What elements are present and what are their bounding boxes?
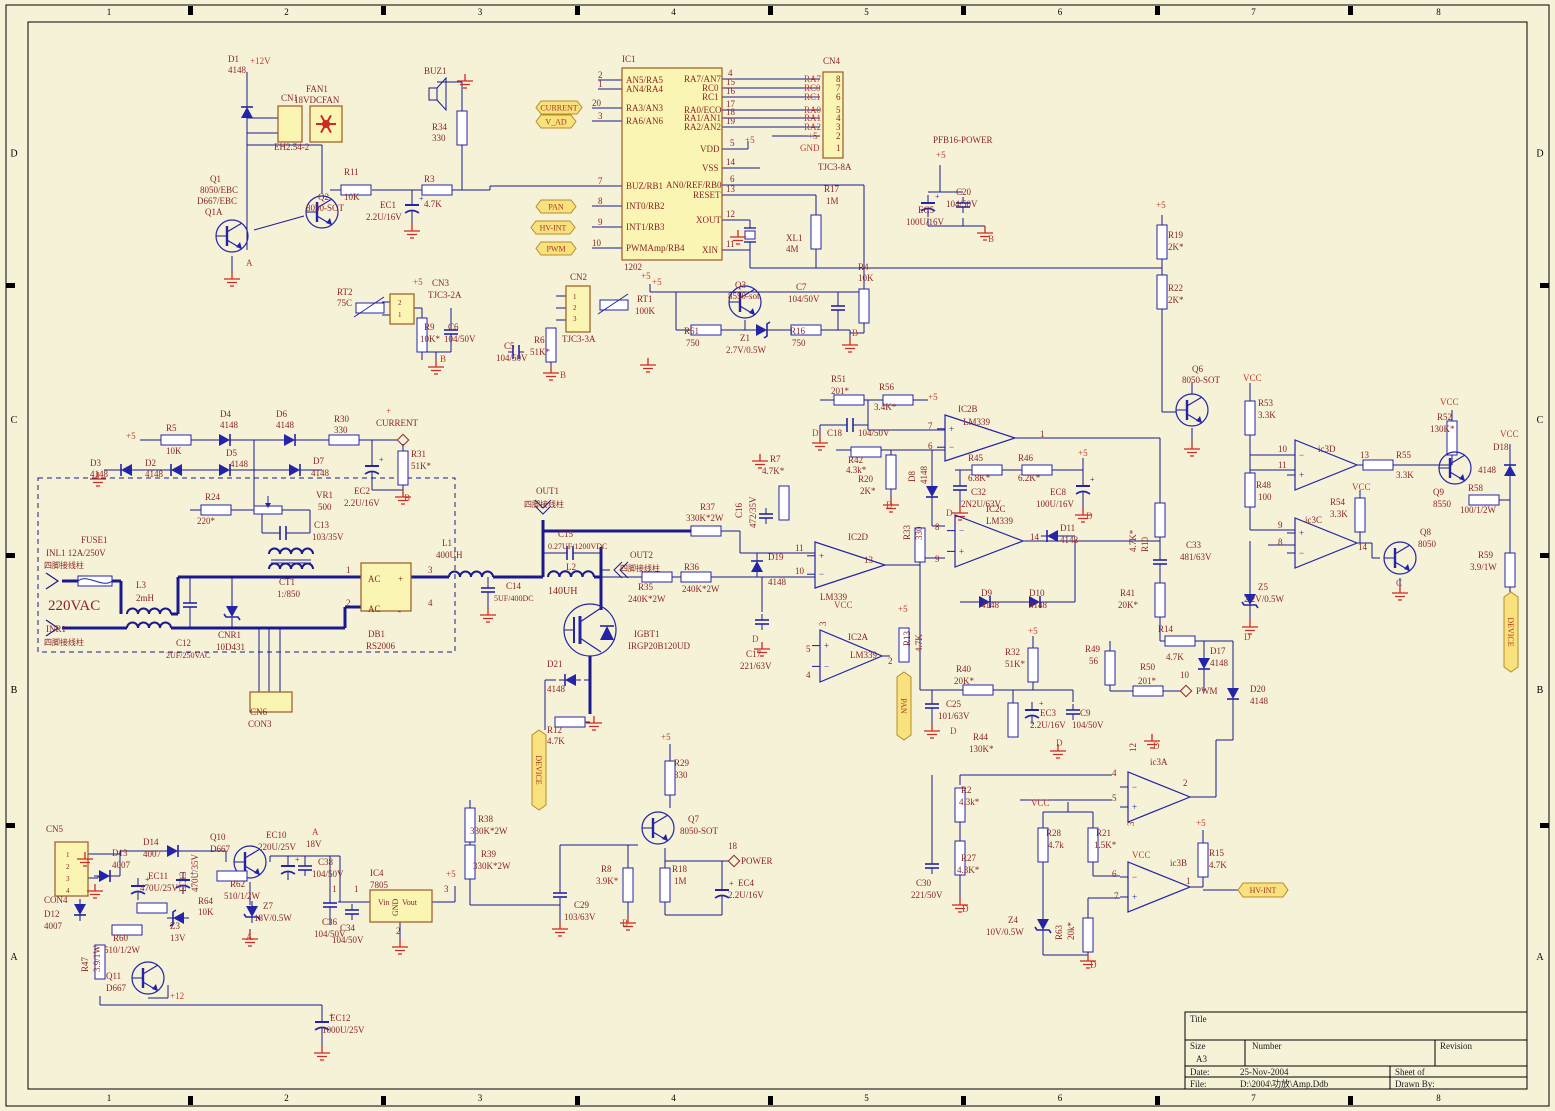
label: R20 bbox=[858, 474, 874, 484]
label: 5 bbox=[806, 644, 811, 654]
label: 330 bbox=[432, 133, 446, 143]
label: GND bbox=[391, 898, 400, 916]
label: CN4 bbox=[823, 56, 841, 66]
label: C32 bbox=[971, 487, 986, 497]
label: C25 bbox=[946, 699, 962, 709]
label: R60 bbox=[113, 933, 129, 943]
label: POWER bbox=[741, 856, 773, 866]
label: IC2D bbox=[848, 532, 869, 542]
label: D19 bbox=[768, 552, 784, 562]
label: 1M bbox=[674, 876, 687, 886]
label: R53 bbox=[1258, 398, 1274, 408]
label: 510/1/2W bbox=[224, 891, 261, 901]
label: 2 bbox=[1183, 778, 1188, 788]
label: +5 bbox=[936, 150, 946, 160]
ruler-col-label: 2 bbox=[284, 1093, 289, 1103]
ruler-tick bbox=[6, 553, 15, 558]
resistor bbox=[1028, 648, 1038, 682]
label: 1 bbox=[1040, 429, 1045, 439]
label: D bbox=[752, 634, 759, 644]
plus-mark: + bbox=[295, 855, 300, 864]
label: 130K* bbox=[1430, 424, 1455, 434]
label: 四脚接线柱 bbox=[44, 560, 84, 570]
label: 4148 bbox=[1060, 535, 1079, 545]
label: 51K* bbox=[1005, 659, 1025, 669]
label: INL1 12A/250V bbox=[46, 548, 106, 558]
label: C12 bbox=[176, 638, 191, 648]
label: L1 bbox=[442, 538, 452, 548]
ruler-row-label: A bbox=[1536, 952, 1544, 963]
label: 6 bbox=[928, 441, 933, 451]
ruler-col-label: 3 bbox=[478, 1093, 483, 1103]
label: 1 bbox=[598, 79, 603, 89]
label: R21 bbox=[1096, 828, 1111, 838]
ruler-tick bbox=[381, 6, 386, 15]
label: D bbox=[1086, 511, 1093, 521]
label: 4148 bbox=[1478, 465, 1497, 475]
label: IGBT1 bbox=[634, 629, 660, 639]
label: 4148 bbox=[230, 459, 249, 469]
label: 104/50V bbox=[496, 353, 528, 363]
label: R22 bbox=[1168, 283, 1183, 293]
label: 20 bbox=[592, 98, 602, 108]
label: EC13 bbox=[178, 871, 188, 892]
resistor bbox=[1505, 553, 1515, 587]
label: +5 bbox=[898, 604, 908, 614]
label: VCC bbox=[1243, 373, 1262, 383]
label: INT0/RB2 bbox=[626, 201, 665, 211]
label: R8 bbox=[601, 864, 612, 874]
label: R7 bbox=[770, 454, 781, 464]
label: 6.2K* bbox=[1018, 473, 1041, 483]
label: 7 bbox=[1114, 891, 1119, 901]
label: Q1 bbox=[210, 174, 221, 184]
label: TJC3-2A bbox=[428, 290, 462, 300]
size-label: Size bbox=[1190, 1041, 1206, 1051]
label: 10K bbox=[858, 273, 874, 283]
label: 103/35V bbox=[312, 532, 344, 542]
net-flag-label: V_AD bbox=[545, 118, 567, 127]
label: 104/50V bbox=[946, 199, 978, 209]
ruler-col-label: 8 bbox=[1436, 1093, 1441, 1103]
resistor bbox=[422, 185, 452, 195]
label: 9 bbox=[598, 217, 603, 227]
label: R19 bbox=[1168, 230, 1184, 240]
label: B bbox=[404, 493, 410, 503]
label: ic3B bbox=[1170, 858, 1187, 868]
resistor bbox=[1198, 843, 1208, 877]
label: +5 bbox=[1028, 626, 1038, 636]
opamp-sign: − bbox=[1132, 782, 1137, 792]
label: 4148 bbox=[919, 466, 929, 485]
ruler-tick bbox=[6, 283, 15, 288]
sheet-of-label: Sheet of bbox=[1395, 1067, 1425, 1077]
resistor bbox=[834, 395, 864, 405]
net-flag: V_AD bbox=[536, 115, 576, 128]
plus-mark: + bbox=[729, 879, 734, 888]
label: R2 bbox=[961, 785, 972, 795]
label: 3.3K bbox=[1396, 470, 1414, 480]
label: +5 bbox=[641, 271, 651, 281]
sheet-size: A3 bbox=[1196, 1054, 1207, 1064]
opamp-sign: + bbox=[819, 551, 824, 561]
label: +5 bbox=[1078, 448, 1088, 458]
label: 100U/16V bbox=[906, 217, 945, 227]
label: D bbox=[886, 500, 893, 510]
label: 四脚接线柱 bbox=[620, 563, 660, 573]
label: 4.7K* bbox=[1128, 529, 1138, 552]
label: CT1 bbox=[279, 577, 295, 587]
label: D4 bbox=[220, 409, 231, 419]
label: R14 bbox=[1158, 624, 1174, 634]
label: CON3 bbox=[248, 719, 272, 729]
resistor bbox=[1157, 275, 1167, 309]
label: R61 bbox=[684, 326, 699, 336]
label: EH2.54-2 bbox=[274, 142, 309, 152]
label: D6 bbox=[276, 409, 287, 419]
ruler-tick bbox=[1540, 283, 1549, 288]
file-label: File: bbox=[1190, 1079, 1207, 1089]
label: C18 bbox=[827, 428, 843, 438]
label: AC bbox=[368, 574, 381, 584]
label: RA6/AN6 bbox=[626, 116, 664, 126]
label: CON4 bbox=[44, 895, 68, 905]
label: 3.3K bbox=[1330, 509, 1348, 519]
label: 1 bbox=[836, 143, 841, 153]
label: 10 bbox=[592, 238, 602, 248]
label: Q10 bbox=[210, 832, 226, 842]
label: 101/63V bbox=[938, 711, 970, 721]
label: D667 bbox=[210, 844, 230, 854]
label: 104/50V bbox=[858, 428, 890, 438]
label: 10V/0.5W bbox=[986, 927, 1024, 937]
component-box bbox=[390, 294, 414, 324]
resistor bbox=[811, 215, 821, 249]
label: 3.9K* bbox=[596, 876, 619, 886]
thermistor bbox=[356, 303, 384, 313]
label: CN5 bbox=[46, 824, 64, 834]
label: LM339 bbox=[986, 516, 1014, 526]
resistor bbox=[660, 868, 670, 902]
label: 10K* bbox=[420, 334, 440, 344]
ruler-tick bbox=[381, 1096, 386, 1105]
label: +5 bbox=[745, 135, 755, 145]
date-value: 25-Nov-2004 bbox=[1240, 1067, 1289, 1077]
schematic-canvas: 1122334455667788DDCCBBAA++−++−+−+−++−+−+… bbox=[0, 0, 1555, 1111]
label: D20 bbox=[1250, 684, 1266, 694]
ruler-tick bbox=[188, 1096, 193, 1105]
ruler-tick bbox=[1348, 6, 1353, 15]
label: Q9 bbox=[1433, 487, 1444, 497]
label: 5 bbox=[730, 138, 735, 148]
label: 201* bbox=[1138, 676, 1157, 686]
label: 470U/35V bbox=[190, 854, 200, 893]
net-flag: CURRENT bbox=[536, 101, 582, 114]
label: 13V bbox=[170, 933, 186, 943]
label: 201* bbox=[831, 386, 850, 396]
label: 470U/25V bbox=[140, 883, 179, 893]
resistor bbox=[201, 505, 231, 515]
resistor bbox=[859, 289, 869, 323]
label: B bbox=[852, 328, 858, 338]
label: 7 bbox=[928, 421, 933, 431]
label: 14 bbox=[1030, 532, 1040, 542]
label: 130K* bbox=[969, 744, 994, 754]
opamp-sign: + bbox=[959, 546, 964, 556]
label: Q7 bbox=[688, 814, 699, 824]
label: D12 bbox=[44, 909, 60, 919]
label: D7 bbox=[313, 456, 324, 466]
label: 750 bbox=[686, 338, 700, 348]
label: 104/50V bbox=[1072, 720, 1104, 730]
label: 2K* bbox=[1168, 242, 1184, 252]
resistor bbox=[329, 435, 359, 445]
label: R52 bbox=[1437, 412, 1452, 422]
label: 2 bbox=[346, 598, 351, 608]
label: R41 bbox=[1120, 588, 1135, 598]
label: 4.3K* bbox=[957, 865, 980, 875]
label: 240K*2W bbox=[682, 584, 720, 594]
label: D1 bbox=[228, 54, 239, 64]
label: A bbox=[246, 932, 253, 942]
label: Q11 bbox=[106, 971, 121, 981]
label: 4.7K bbox=[914, 634, 924, 652]
label: 104/50V bbox=[332, 935, 364, 945]
net-flag: HV-INT bbox=[531, 221, 575, 234]
label: 1 bbox=[398, 311, 402, 319]
net-flag-label: HV-INT bbox=[540, 224, 567, 233]
label: R40 bbox=[956, 664, 972, 674]
label: D13 bbox=[112, 848, 128, 858]
label: 2 bbox=[573, 304, 577, 312]
ruler-tick bbox=[188, 6, 193, 15]
label: 10K bbox=[344, 192, 360, 202]
label: 18V bbox=[306, 839, 322, 849]
label: 3 bbox=[598, 111, 603, 121]
label: 3 bbox=[818, 621, 828, 626]
label: 2UF/250VAC bbox=[166, 651, 210, 660]
label: C9 bbox=[1080, 708, 1091, 718]
label: GND bbox=[800, 143, 820, 153]
label: +5 bbox=[413, 277, 423, 287]
ruler-row-label: C bbox=[1537, 415, 1544, 426]
net-flag-label: DEVICE bbox=[1506, 617, 1515, 646]
ruler-col-label: 5 bbox=[864, 7, 869, 17]
label: 4148 bbox=[1210, 658, 1229, 668]
label: D bbox=[1153, 741, 1160, 751]
label: 220VAC bbox=[48, 598, 100, 614]
label: XOUT bbox=[696, 215, 721, 225]
ruler-col-label: 8 bbox=[1436, 7, 1441, 17]
label: R48 bbox=[1256, 480, 1272, 490]
resistor bbox=[1469, 495, 1499, 505]
resistor bbox=[1008, 703, 1018, 737]
label: R10 bbox=[1140, 536, 1150, 552]
label: R39 bbox=[481, 849, 497, 859]
label: R15 bbox=[1209, 848, 1225, 858]
label: 11 bbox=[1278, 460, 1287, 470]
resistor bbox=[457, 111, 467, 145]
label: +5 bbox=[1156, 200, 1166, 210]
label: R13 bbox=[902, 630, 912, 646]
label: 9 bbox=[935, 554, 940, 564]
label: 472/35V bbox=[748, 496, 758, 528]
label: TJC3-3A bbox=[562, 334, 596, 344]
label: ic3C bbox=[1305, 515, 1322, 525]
label: 4148 bbox=[145, 469, 164, 479]
ruler-col-label: 1 bbox=[107, 1093, 112, 1103]
label: 2K* bbox=[860, 486, 876, 496]
label: PWM bbox=[1196, 686, 1218, 696]
label: R12 bbox=[547, 725, 562, 735]
ruler-row-label: D bbox=[1536, 149, 1543, 160]
label: 18 bbox=[728, 841, 738, 851]
net-flag-label: PAN bbox=[899, 698, 908, 713]
label: R47 bbox=[80, 956, 90, 972]
label: CN3 bbox=[432, 278, 450, 288]
label: R64 bbox=[198, 896, 214, 906]
label: A bbox=[312, 827, 319, 837]
label: 11 bbox=[795, 543, 804, 553]
label: 1 bbox=[332, 884, 337, 894]
label: C20 bbox=[956, 187, 972, 197]
label: R51 bbox=[831, 374, 846, 384]
resistor bbox=[1355, 498, 1365, 532]
label: R62 bbox=[230, 879, 245, 889]
label: +5 bbox=[1196, 818, 1206, 828]
label: 6 bbox=[1112, 869, 1117, 879]
label: INT1/RB3 bbox=[626, 222, 665, 232]
label: 4 bbox=[428, 598, 433, 608]
net-flag: PAN bbox=[536, 200, 576, 213]
label: FAN1 bbox=[306, 84, 328, 94]
component-box bbox=[278, 106, 302, 142]
label: 400UH bbox=[436, 550, 463, 560]
label: 8 bbox=[1278, 537, 1283, 547]
resistor bbox=[1245, 473, 1255, 507]
label: 481/63V bbox=[1180, 552, 1212, 562]
label: RESET bbox=[693, 190, 721, 200]
label: R46 bbox=[1018, 453, 1034, 463]
label: 1000U/25V bbox=[322, 1025, 365, 1035]
label: +5 bbox=[446, 869, 456, 879]
opamp-sign: + bbox=[1132, 802, 1137, 812]
label: EC10 bbox=[266, 830, 287, 840]
label: 7805 bbox=[370, 880, 389, 890]
label: IC2A bbox=[848, 632, 869, 642]
plus-mark: + bbox=[1039, 699, 1044, 708]
label: 5 bbox=[1112, 793, 1117, 803]
opamp-sign: − bbox=[819, 569, 824, 579]
label: +5 bbox=[126, 431, 136, 441]
label: 12 bbox=[1128, 743, 1138, 752]
label: L2 bbox=[566, 562, 576, 572]
label: R11 bbox=[344, 167, 359, 177]
label: D667 bbox=[106, 983, 126, 993]
ruler-tick bbox=[961, 1096, 966, 1105]
label: 10 bbox=[795, 566, 805, 576]
label: 4148 bbox=[276, 420, 295, 430]
label: B bbox=[440, 354, 446, 364]
ruler-tick bbox=[1540, 823, 1549, 828]
label: R33 bbox=[902, 524, 912, 540]
label: C7 bbox=[796, 282, 807, 292]
plus-mark: + bbox=[935, 192, 940, 201]
label: 3 bbox=[444, 884, 449, 894]
label: VCC bbox=[1500, 429, 1519, 439]
label: 3.9/1W bbox=[92, 945, 102, 972]
label: EC1 bbox=[380, 200, 396, 210]
label: 9 bbox=[1278, 520, 1283, 530]
label: 8050-SOT bbox=[1182, 375, 1221, 385]
label: 1 bbox=[66, 851, 70, 859]
net-flag-label: PWM bbox=[546, 245, 565, 254]
label: R59 bbox=[1478, 550, 1494, 560]
ruler-tick bbox=[768, 1096, 773, 1105]
label: R37 bbox=[700, 502, 716, 512]
label: OUT2 bbox=[630, 550, 653, 560]
label: 51K* bbox=[530, 347, 550, 357]
resistor bbox=[1105, 651, 1115, 685]
label: VCC bbox=[834, 600, 853, 610]
resistor bbox=[398, 451, 408, 485]
label: 4 bbox=[1112, 768, 1117, 778]
ruler-tick bbox=[1155, 1096, 1160, 1105]
label: 8550 bbox=[1433, 499, 1452, 509]
label: 2mH bbox=[136, 593, 155, 603]
label: 13 bbox=[864, 555, 874, 565]
label: Z4 bbox=[1008, 915, 1018, 925]
label: D18 bbox=[1493, 442, 1509, 452]
label: 500 bbox=[318, 502, 332, 512]
label: 330K*2W bbox=[473, 861, 511, 871]
file-value: D:\2004\功放\Amp.Ddb bbox=[1240, 1078, 1329, 1089]
label: 100 bbox=[1258, 492, 1272, 502]
label: Q8 bbox=[1420, 527, 1431, 537]
label: 4148 bbox=[311, 468, 330, 478]
resistor bbox=[779, 486, 789, 520]
date-label: Date: bbox=[1190, 1067, 1210, 1077]
label: 2.2V/0.5W bbox=[1244, 594, 1285, 604]
label: 11 bbox=[726, 239, 735, 249]
opamp-sign: − bbox=[1299, 548, 1304, 558]
label: R35 bbox=[638, 582, 654, 592]
resistor bbox=[963, 685, 993, 695]
label: D3 bbox=[90, 458, 101, 468]
label: 221/63V bbox=[740, 661, 772, 671]
label: 104/50V bbox=[444, 334, 476, 344]
label: CN2 bbox=[570, 272, 587, 282]
label: BUZ1 bbox=[424, 66, 447, 76]
label: IC2B bbox=[958, 404, 978, 414]
label: EC3 bbox=[1040, 708, 1057, 718]
label: C16 bbox=[734, 502, 744, 518]
ruler-tick bbox=[575, 6, 580, 15]
label: 8050 bbox=[1418, 539, 1437, 549]
label: D bbox=[1056, 738, 1063, 748]
label: FUSE1 bbox=[81, 535, 108, 545]
net-flag-label: CURRENT bbox=[540, 104, 577, 113]
label: VCC bbox=[1440, 397, 1459, 407]
label: 4M bbox=[786, 244, 799, 254]
label: R18 bbox=[672, 864, 688, 874]
label: 8 bbox=[935, 522, 940, 532]
label: R27 bbox=[961, 853, 977, 863]
label: +5 bbox=[661, 732, 671, 742]
net-flag: DEVICE bbox=[1504, 592, 1518, 672]
label: 10 bbox=[1180, 670, 1190, 680]
label: R44 bbox=[973, 732, 989, 742]
